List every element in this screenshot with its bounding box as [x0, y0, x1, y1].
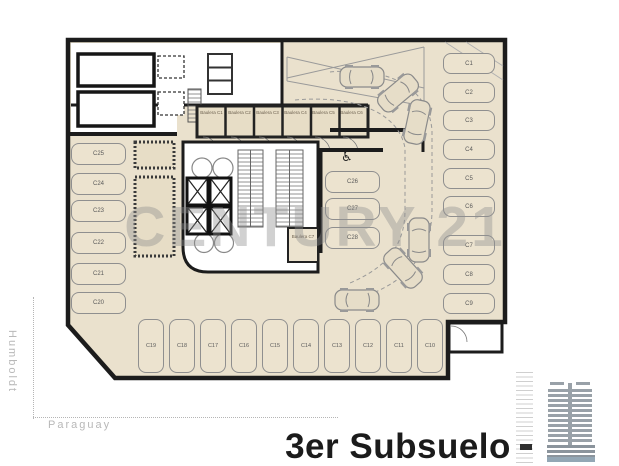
fixture-circle [213, 158, 233, 178]
parking-stall-c11: C11 [386, 319, 412, 373]
parking-stall-c1: C1 [443, 53, 495, 74]
hatched-area-small [135, 142, 174, 168]
parking-stall-c4: C4 [443, 139, 495, 160]
parking-stall-c15: C15 [262, 319, 288, 373]
floor-title: 3er Subsuelo [278, 427, 518, 466]
baulera-label-c6: Baulera C6 [338, 110, 365, 116]
parking-stall-c2: C2 [443, 82, 495, 103]
baulera-label-c1: Baulera C1 [198, 110, 225, 116]
parking-stall-c17: C17 [200, 319, 226, 373]
century21-watermark: CENTURY 21 [95, 194, 535, 260]
lot-boundary-bottom [33, 417, 338, 418]
floor-index-list [516, 372, 533, 464]
building-roof-mark [576, 382, 590, 385]
fixture-circle [192, 158, 212, 178]
tank-room-2 [78, 92, 154, 126]
shaft-stack [208, 54, 232, 94]
parking-stall-c8: C8 [443, 264, 495, 285]
parking-stall-c16: C16 [231, 319, 257, 373]
car-icon [340, 65, 384, 89]
parking-stall-c5: C5 [443, 168, 495, 189]
building-elevation-icon [538, 382, 610, 464]
annex-room [449, 323, 502, 352]
parking-stall-c19: C19 [138, 319, 164, 373]
parking-stall-c13: C13 [324, 319, 350, 373]
dashed-equipment-1 [158, 56, 184, 78]
parking-stall-c14: C14 [293, 319, 319, 373]
wheelchair-accessible-icon: ♿ [341, 150, 353, 165]
parking-stall-c3: C3 [443, 110, 495, 131]
floorplan-page: C25 C24 C23 C22 C21 C20 C26 C27 C28 C1 C… [0, 0, 619, 466]
parking-stall-c18: C18 [169, 319, 195, 373]
building-base-floors [547, 445, 595, 457]
lot-boundary-left [33, 297, 34, 419]
parking-stall-c12: C12 [355, 319, 381, 373]
baulera-label-c2: Baulera C2 [226, 110, 253, 116]
street-label-humboldt: Humboldt [6, 330, 18, 393]
baulera-label-c4: Baulera C4 [282, 110, 309, 116]
parking-stall-c24: C24 [71, 173, 126, 195]
car-icon [335, 288, 379, 312]
parking-stall-c20: C20 [71, 292, 126, 314]
street-label-paraguay: Paraguay [48, 419, 111, 431]
tank-room-1 [78, 54, 154, 86]
parking-stall-c26: C26 [325, 171, 380, 193]
baulera-label-c5: Baulera C5 [310, 110, 337, 116]
building-roof-mark [550, 382, 564, 385]
parking-stall-c10: C10 [417, 319, 443, 373]
dashed-equipment-2 [158, 92, 184, 115]
building-core-column [568, 383, 572, 445]
parking-stall-c25: C25 [71, 143, 126, 165]
parking-stall-c21: C21 [71, 263, 126, 285]
parking-stall-c9: C9 [443, 293, 495, 314]
current-floor-marker [520, 444, 532, 450]
baulera-label-c3: Baulera C3 [254, 110, 281, 116]
building-basement-highlight [547, 457, 595, 462]
